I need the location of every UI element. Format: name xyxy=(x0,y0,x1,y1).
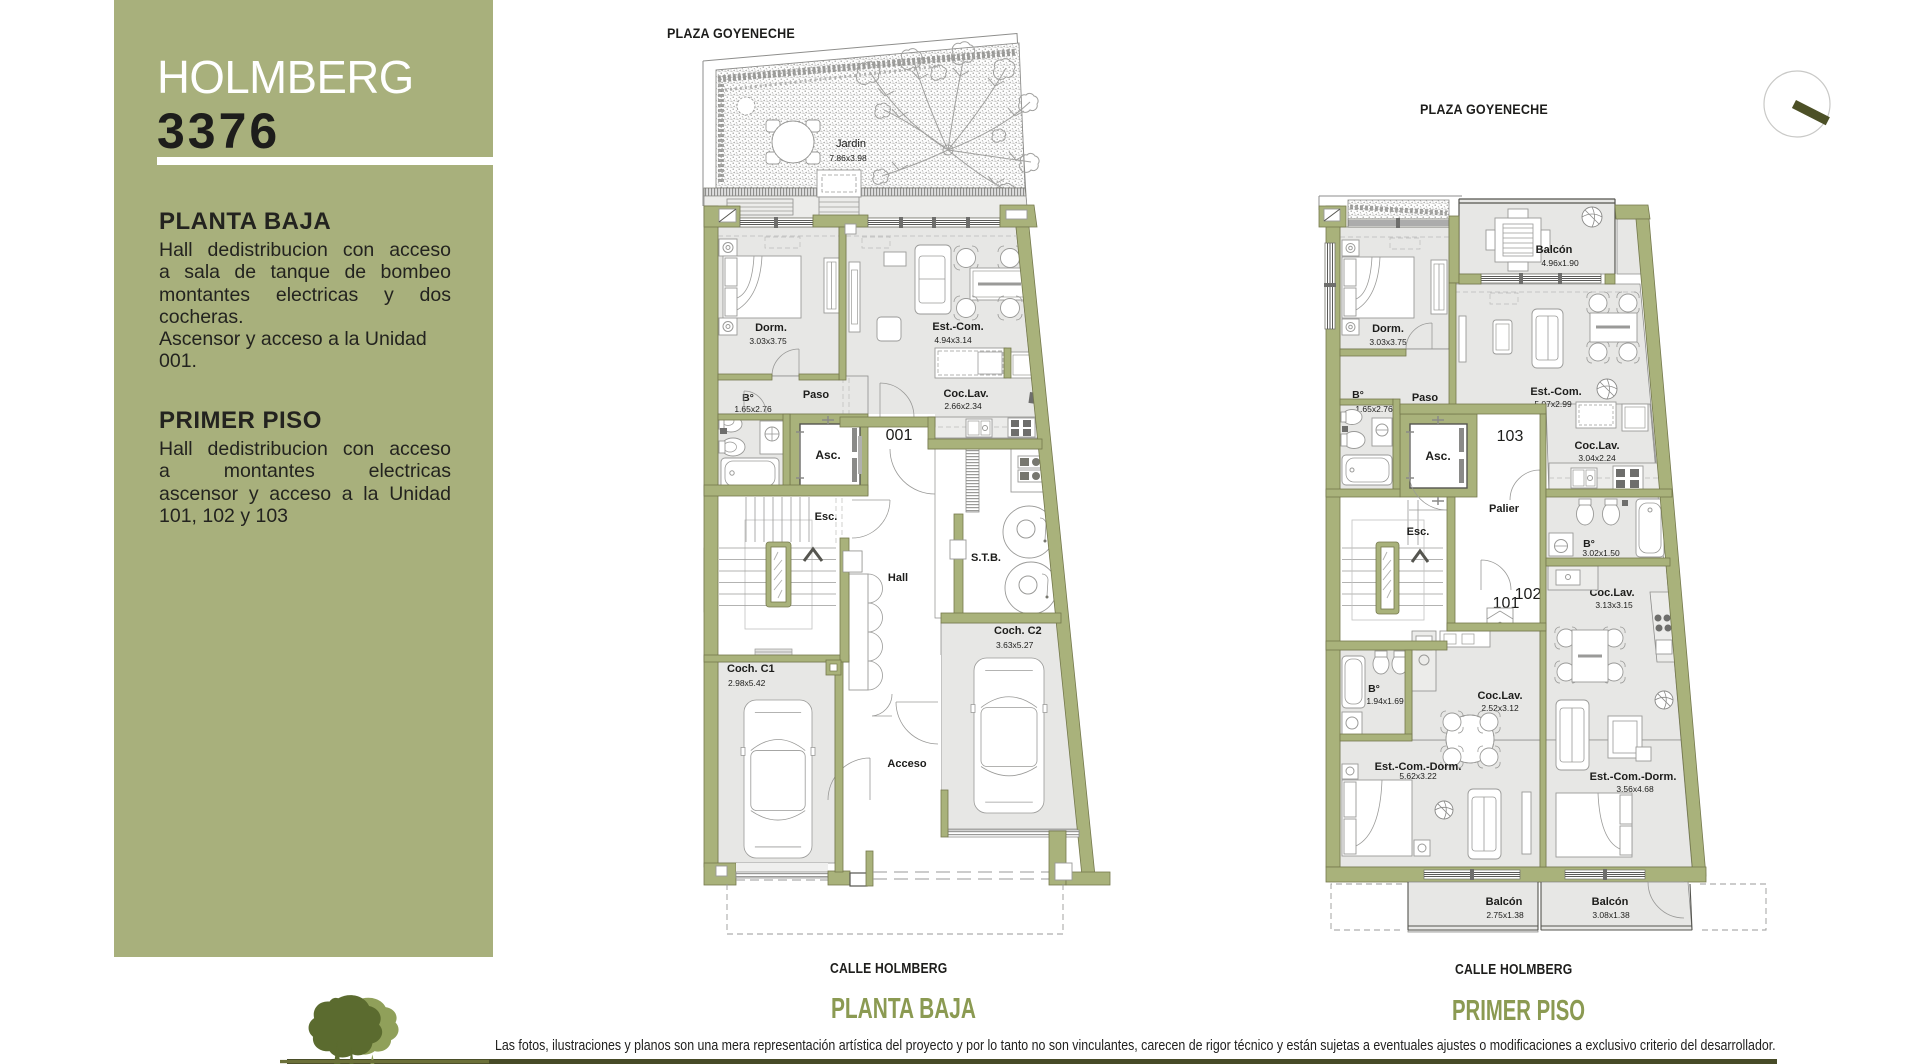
svg-text:1.65x2.76: 1.65x2.76 xyxy=(1355,404,1393,414)
svg-text:Coc.Lav.: Coc.Lav. xyxy=(1574,440,1619,452)
svg-text:Paso: Paso xyxy=(803,389,830,401)
svg-text:Dorm.: Dorm. xyxy=(755,322,787,334)
svg-text:3.63x5.27: 3.63x5.27 xyxy=(996,640,1034,650)
svg-text:3.04x2.24: 3.04x2.24 xyxy=(1578,453,1616,463)
svg-text:Paso: Paso xyxy=(1412,392,1439,404)
svg-text:Balcón: Balcón xyxy=(1536,244,1573,256)
svg-text:Coc.Lav.: Coc.Lav. xyxy=(1477,690,1522,702)
svg-text:7.86x3.98: 7.86x3.98 xyxy=(829,153,867,163)
svg-text:2.52x3.12: 2.52x3.12 xyxy=(1481,703,1519,713)
svg-text:2.66x2.34: 2.66x2.34 xyxy=(944,401,982,411)
svg-text:3.13x3.15: 3.13x3.15 xyxy=(1595,600,1633,610)
svg-text:Coch. C1: Coch. C1 xyxy=(727,663,775,675)
svg-text:Coch. C2: Coch. C2 xyxy=(994,625,1042,637)
svg-text:001: 001 xyxy=(886,427,913,444)
svg-text:1.94x1.69: 1.94x1.69 xyxy=(1366,696,1404,706)
svg-text:Esc.: Esc. xyxy=(1407,526,1430,538)
svg-text:2.98x5.42: 2.98x5.42 xyxy=(728,678,766,688)
svg-text:3.02x1.50: 3.02x1.50 xyxy=(1582,548,1620,558)
svg-text:3.03x3.75: 3.03x3.75 xyxy=(1369,337,1407,347)
svg-text:Acceso: Acceso xyxy=(887,758,926,770)
svg-text:2.75x1.38: 2.75x1.38 xyxy=(1486,910,1524,920)
svg-text:Coc.Lav.: Coc.Lav. xyxy=(943,388,988,400)
svg-text:Jardin: Jardin xyxy=(836,138,866,150)
svg-text:3.08x1.38: 3.08x1.38 xyxy=(1592,910,1630,920)
svg-text:Est.-Com.: Est.-Com. xyxy=(932,321,983,333)
svg-text:Asc.: Asc. xyxy=(815,448,840,462)
svg-text:B°: B° xyxy=(1368,683,1380,695)
svg-text:S.T.B.: S.T.B. xyxy=(971,552,1001,564)
svg-text:Est.-Com.-Dorm.: Est.-Com.-Dorm. xyxy=(1590,771,1677,783)
svg-text:Balcón: Balcón xyxy=(1486,896,1523,908)
svg-text:4.94x3.14: 4.94x3.14 xyxy=(934,335,972,345)
svg-text:Est.-Com.: Est.-Com. xyxy=(1530,386,1581,398)
svg-text:3.03x3.75: 3.03x3.75 xyxy=(749,336,787,346)
svg-text:Palier: Palier xyxy=(1489,503,1520,515)
svg-text:5.62x3.22: 5.62x3.22 xyxy=(1399,771,1437,781)
svg-text:Dorm.: Dorm. xyxy=(1372,323,1404,335)
svg-text:3.56x4.68: 3.56x4.68 xyxy=(1616,784,1654,794)
svg-text:4.96x1.90: 4.96x1.90 xyxy=(1541,258,1579,268)
svg-text:Hall: Hall xyxy=(888,572,908,584)
svg-text:Esc.: Esc. xyxy=(815,511,838,523)
svg-text:Asc.: Asc. xyxy=(1425,449,1450,463)
svg-text:103: 103 xyxy=(1497,428,1524,445)
svg-text:Balcón: Balcón xyxy=(1592,896,1629,908)
svg-text:102: 102 xyxy=(1515,586,1542,603)
